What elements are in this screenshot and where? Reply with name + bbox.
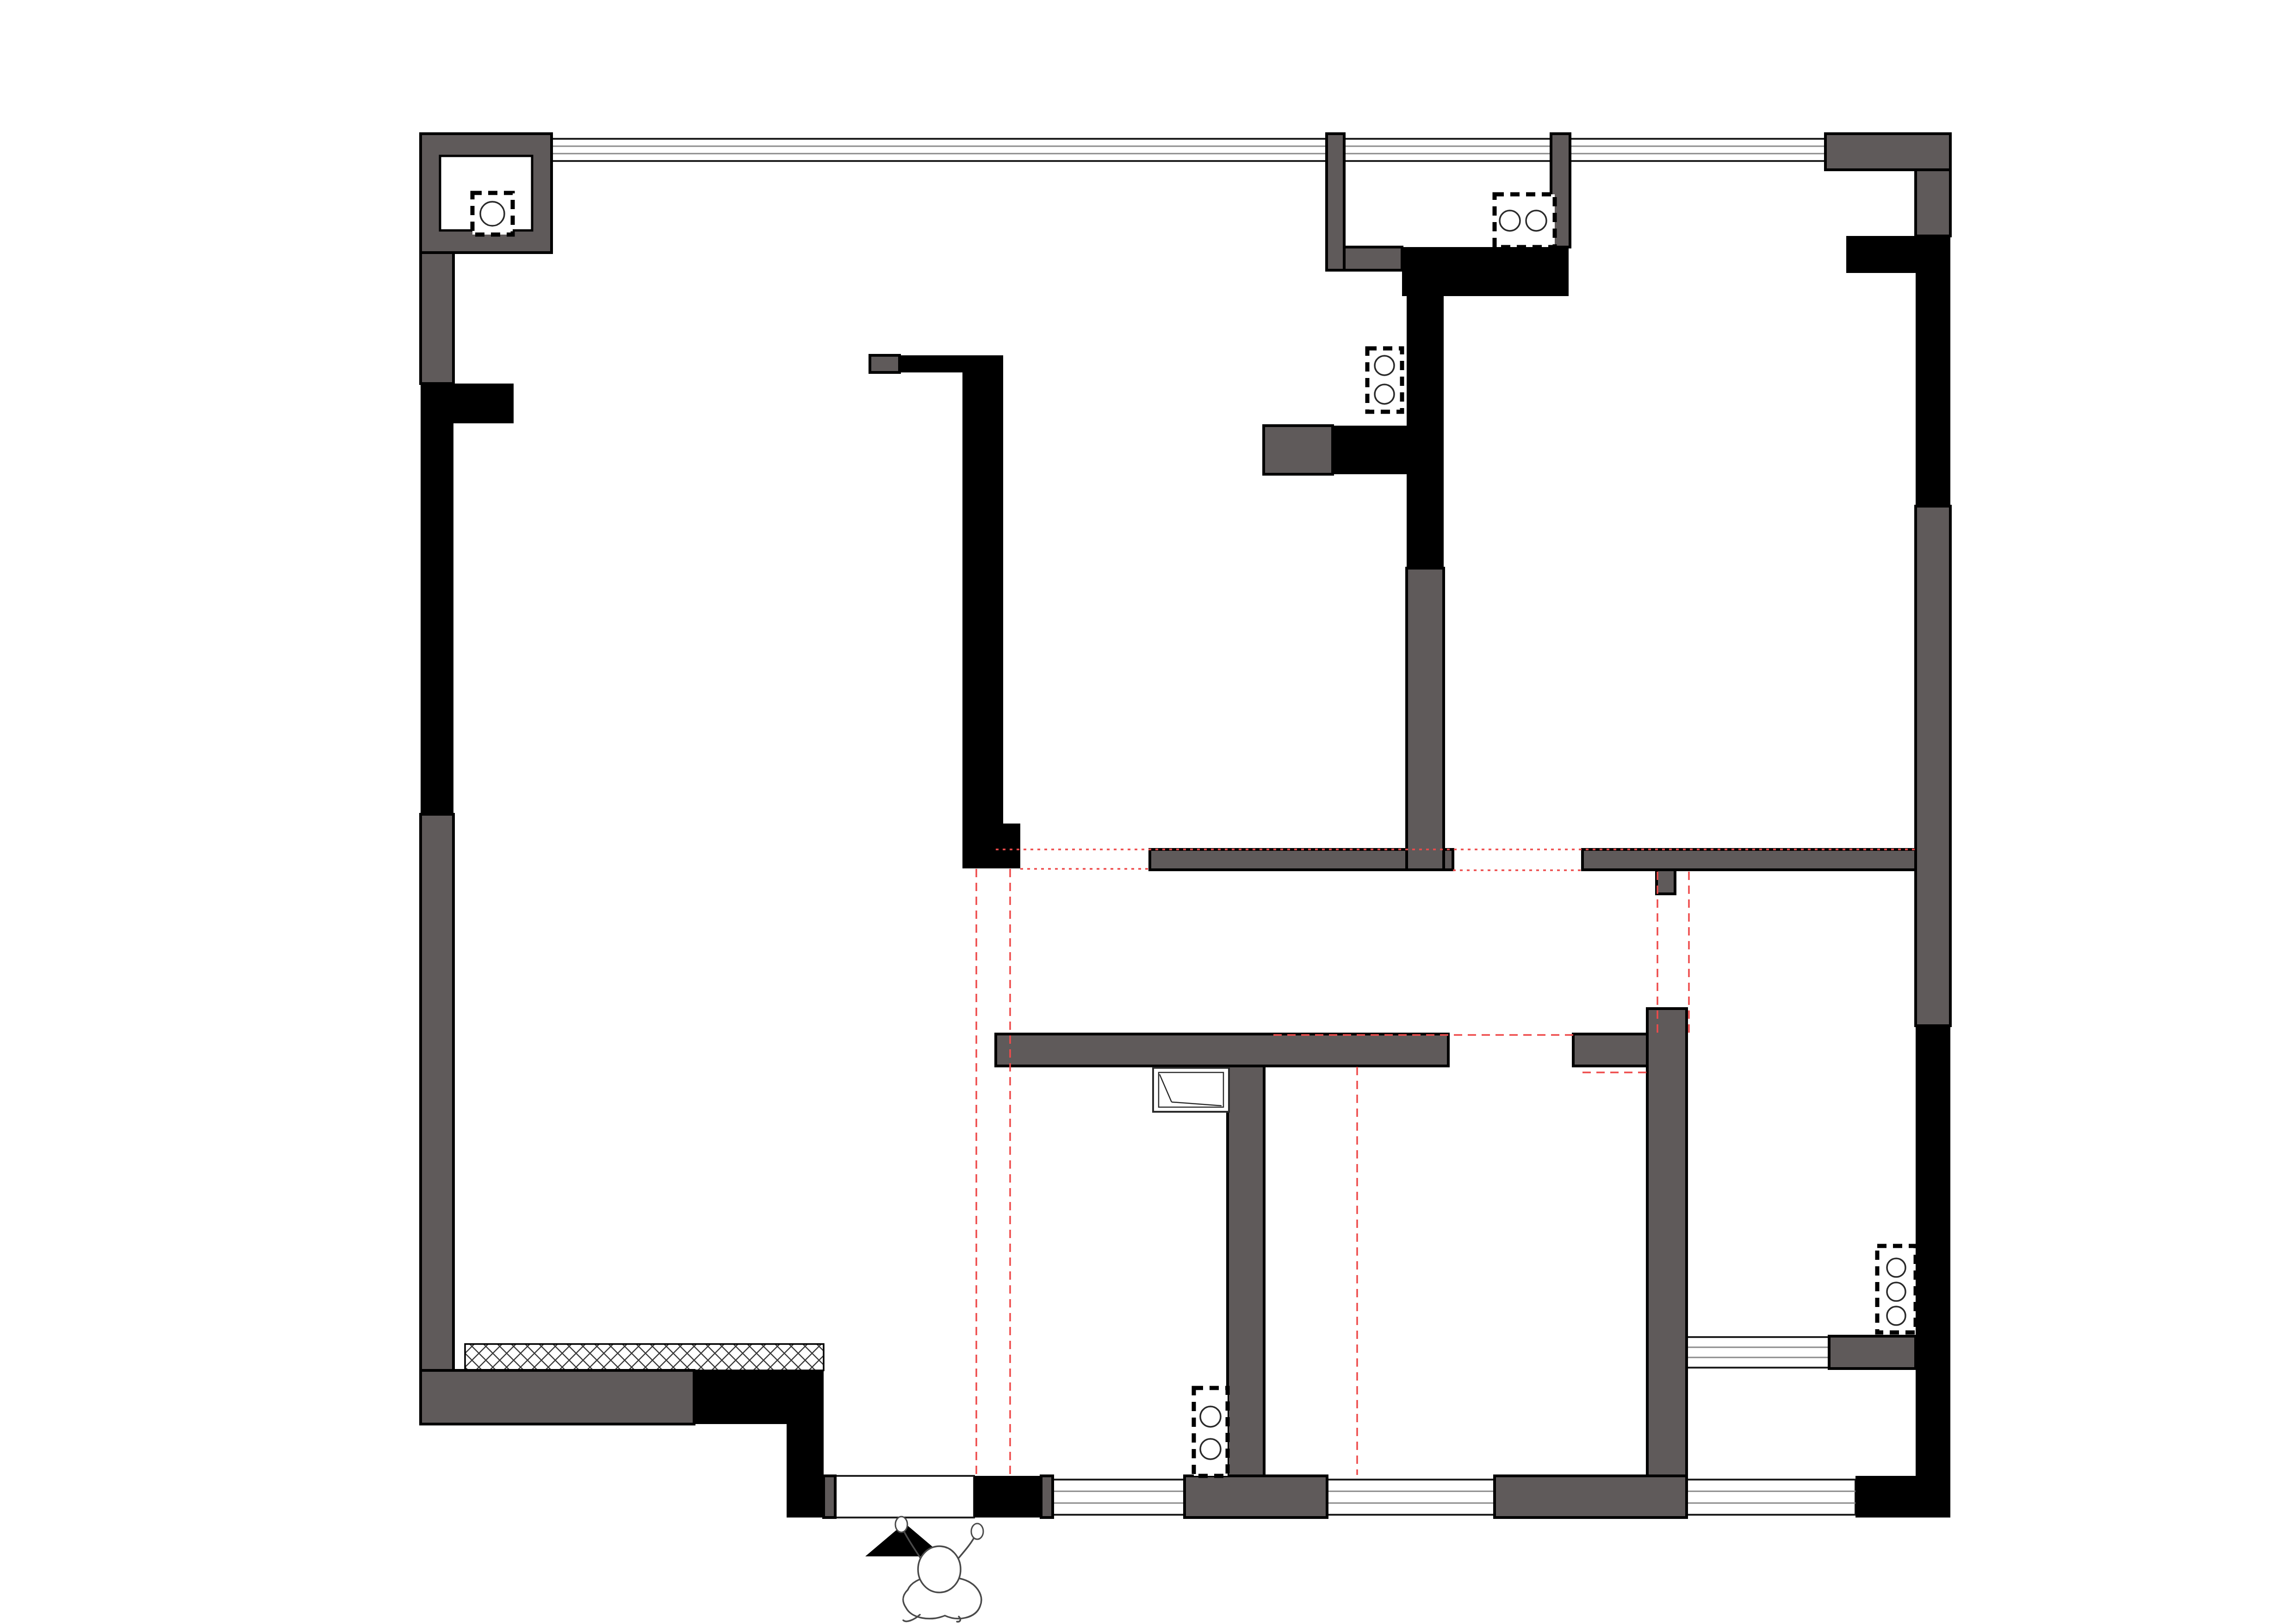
porch-jamb-black: [787, 1424, 824, 1518]
bath-riser-box-circle: [1887, 1307, 1905, 1325]
left-wall-black: [421, 384, 453, 814]
niche-stub-gray: [1264, 426, 1333, 474]
corridor-wall-right: [1582, 849, 1916, 870]
top-right-wall-v: [1916, 170, 1950, 236]
kitchen-bottom-wall: [1185, 1476, 1327, 1518]
structural-walls-layer: [421, 236, 1950, 1518]
bottom-right-foot: [1855, 1476, 1916, 1518]
right-wall-black-upper: [1916, 236, 1950, 506]
person-figure-head: [918, 1546, 961, 1592]
entry-jamb-cap: [824, 1476, 835, 1518]
divider-bar-black: [900, 355, 1003, 372]
bay-flue-box-circle: [1526, 211, 1546, 231]
stove-box: [1194, 1388, 1228, 1476]
top-right-wall-h: [1825, 134, 1950, 170]
demolish-hatch-wall: [465, 1344, 824, 1370]
riser-base-block: [1829, 1336, 1916, 1369]
stove-box-circle: [1200, 1406, 1221, 1427]
kitchen-flue-box-circle: [1375, 384, 1394, 404]
left-wall-upper: [421, 253, 453, 384]
right-wall-black-lower: [1916, 1026, 1950, 1518]
right-wall-mid: [1916, 506, 1950, 1026]
bottom-left-black: [694, 1370, 824, 1424]
right-wall-stub: [1846, 236, 1916, 273]
bay-left-foot: [1344, 247, 1402, 270]
window-bottom-right: [1687, 1480, 1855, 1515]
entry-threshold: [835, 1476, 974, 1518]
entry-block-cap: [1041, 1476, 1053, 1518]
bay-left-wall: [1327, 134, 1344, 270]
bath-door-stub: [1657, 870, 1675, 894]
bed1-left-wall-upper: [1407, 253, 1444, 568]
window-top-right: [1570, 139, 1825, 161]
living-divider-foot: [1003, 824, 1020, 868]
niche-stub-black: [1333, 426, 1407, 474]
bottom-left-wall: [421, 1370, 694, 1424]
entry-block-black: [974, 1476, 1041, 1518]
shaft-drain-box-circle: [480, 202, 504, 226]
floorplan-page: [0, 0, 2296, 1623]
bed2-bottom-wall: [1495, 1476, 1687, 1518]
left-wall-stub: [421, 384, 514, 423]
window-bath-south: [1687, 1337, 1829, 1368]
living-divider-wall: [962, 372, 1003, 868]
person-figure-hand: [971, 1524, 983, 1539]
window-top-left: [552, 139, 1327, 161]
window-bottom-bed2: [1327, 1480, 1495, 1515]
bath-riser-box-circle: [1887, 1282, 1905, 1301]
window-top-bay: [1344, 139, 1551, 161]
person-figure-hand: [895, 1517, 907, 1532]
hatch-layer: [465, 1344, 824, 1370]
person-figure-arm: [957, 1535, 975, 1560]
bed1-left-wall-lower: [1407, 568, 1444, 870]
annotation-layer: [865, 1517, 983, 1622]
bay-flue-box-circle: [1500, 211, 1520, 231]
guides-layer: [976, 849, 1916, 1476]
window-bottom-porch: [1053, 1480, 1185, 1515]
kitchen-divider-wall: [1228, 1066, 1264, 1476]
bath-riser-box-circle: [1887, 1258, 1905, 1277]
existing-walls-layer: [421, 134, 1950, 1518]
kitchen-top-wall: [996, 1034, 1448, 1066]
fixtures-layer: [472, 193, 1916, 1476]
divider-bar-cap: [870, 355, 900, 372]
stove-box-circle: [1200, 1439, 1221, 1459]
bed2-right-wall: [1647, 1009, 1687, 1518]
floor-plan-svg: [0, 0, 2296, 1623]
kitchen-flue-box-circle: [1375, 356, 1394, 375]
left-wall-lower: [421, 814, 453, 1370]
